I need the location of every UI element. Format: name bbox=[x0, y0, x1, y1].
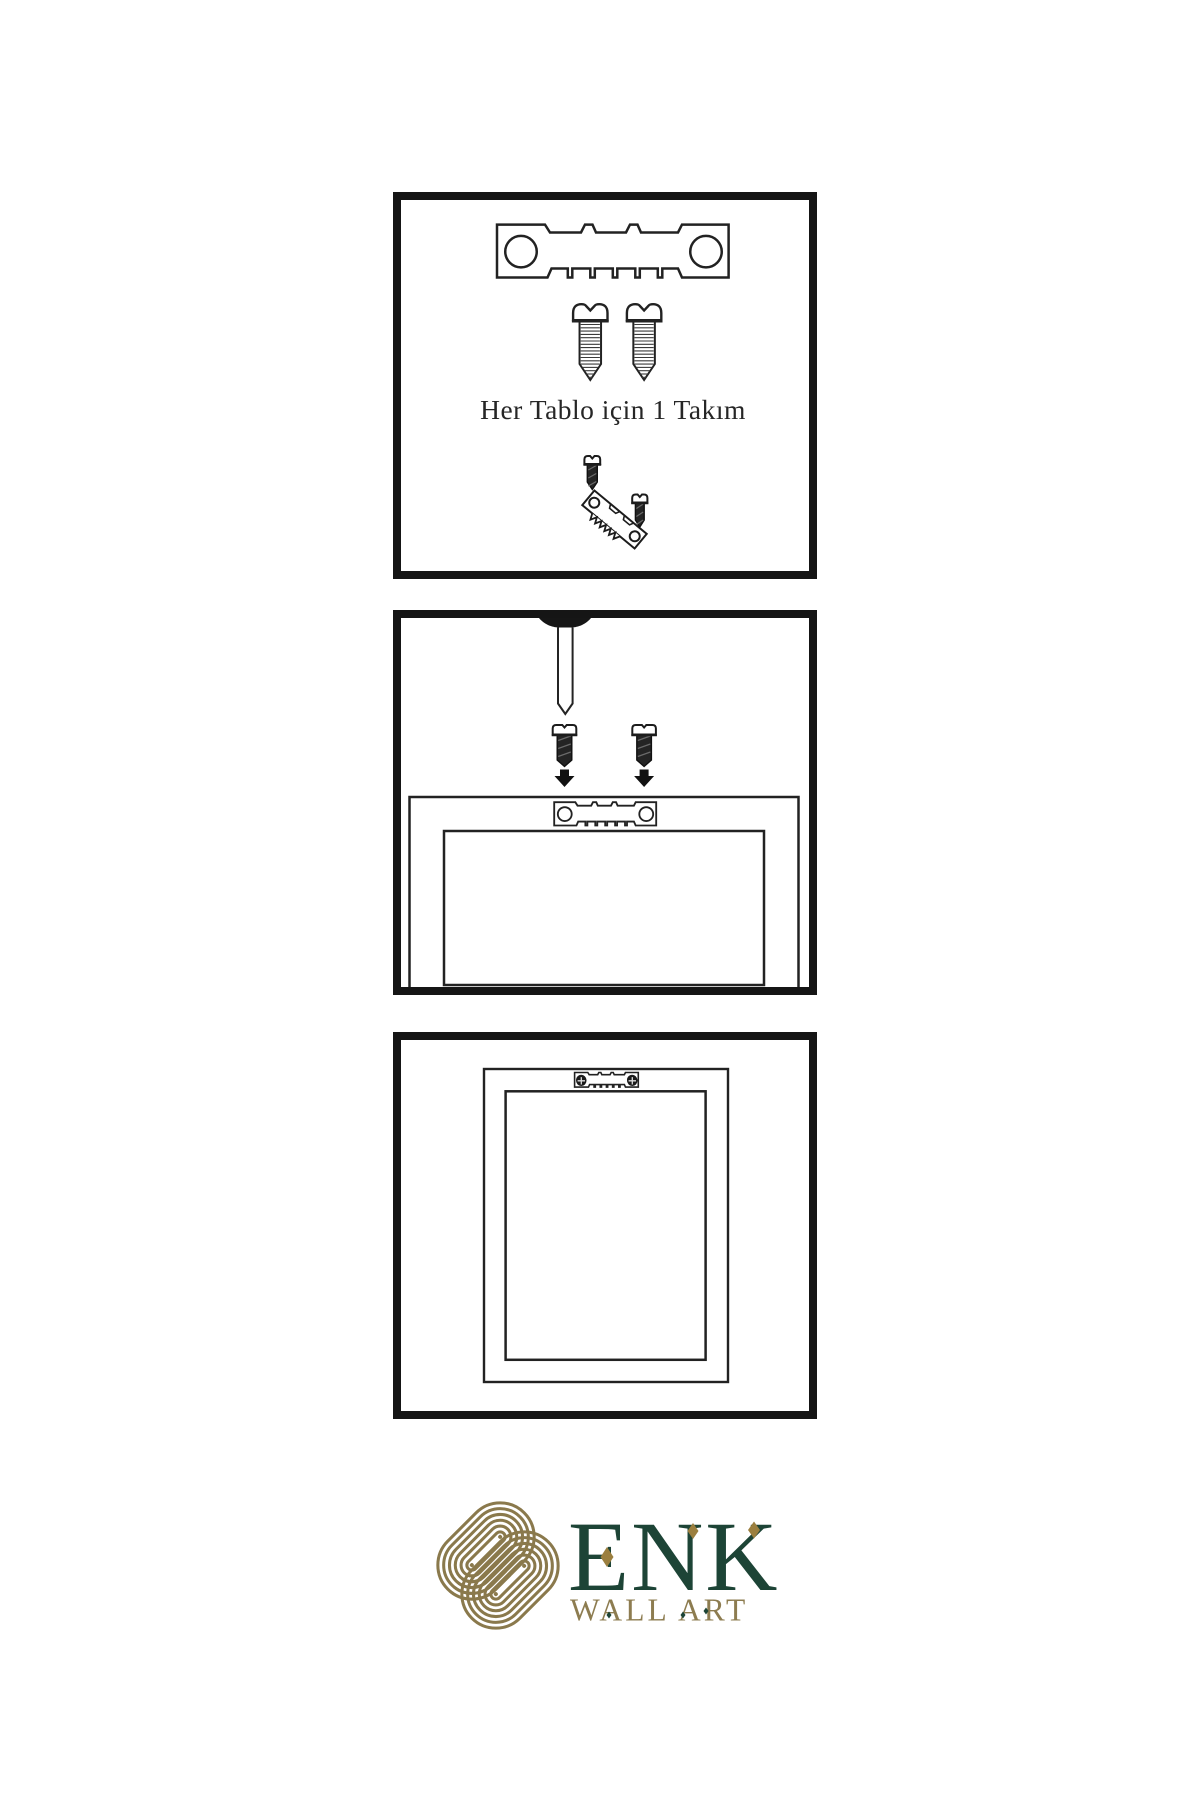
svg-text:WALL ART: WALL ART bbox=[570, 1593, 748, 1628]
svg-text:Her Tablo için 1 Takım: Her Tablo için 1 Takım bbox=[480, 394, 746, 425]
